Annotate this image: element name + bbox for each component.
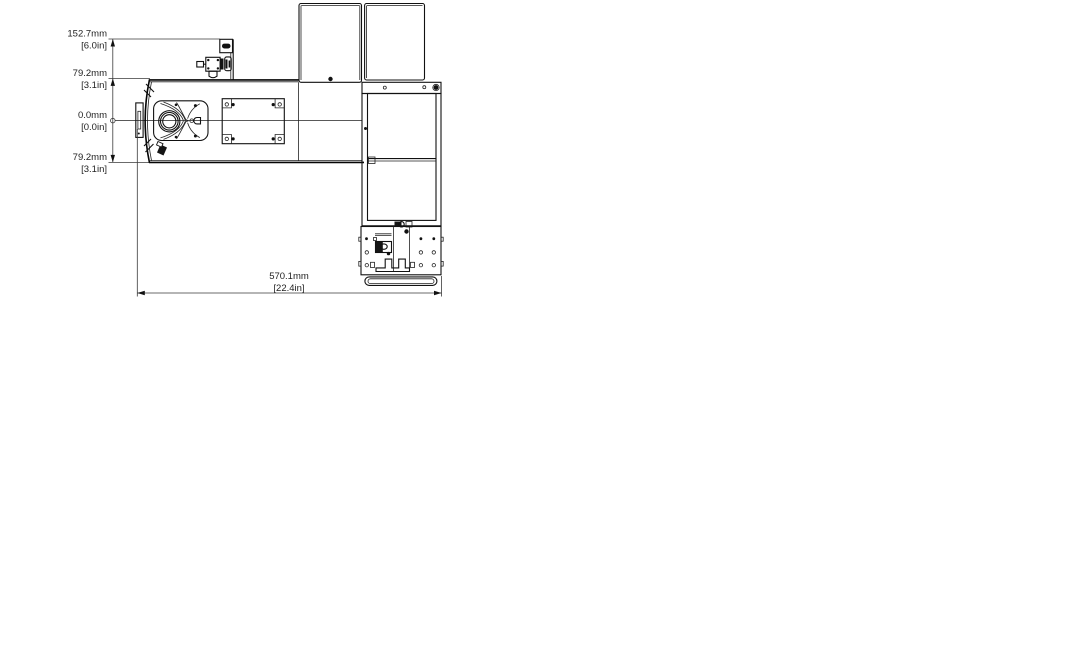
svg-text:[3.1in]: [3.1in] [81,164,107,175]
svg-text:79.2mm: 79.2mm [73,152,107,163]
svg-text:[0.0in]: [0.0in] [81,122,107,133]
svg-text:79.2mm: 79.2mm [73,68,107,79]
svg-text:[6.0in]: [6.0in] [81,41,107,52]
svg-text:0.0mm: 0.0mm [78,110,107,121]
svg-text:[22.4in]: [22.4in] [273,283,304,294]
svg-text:152.7mm: 152.7mm [67,29,107,40]
svg-text:[3.1in]: [3.1in] [81,80,107,91]
svg-text:570.1mm: 570.1mm [269,271,309,282]
